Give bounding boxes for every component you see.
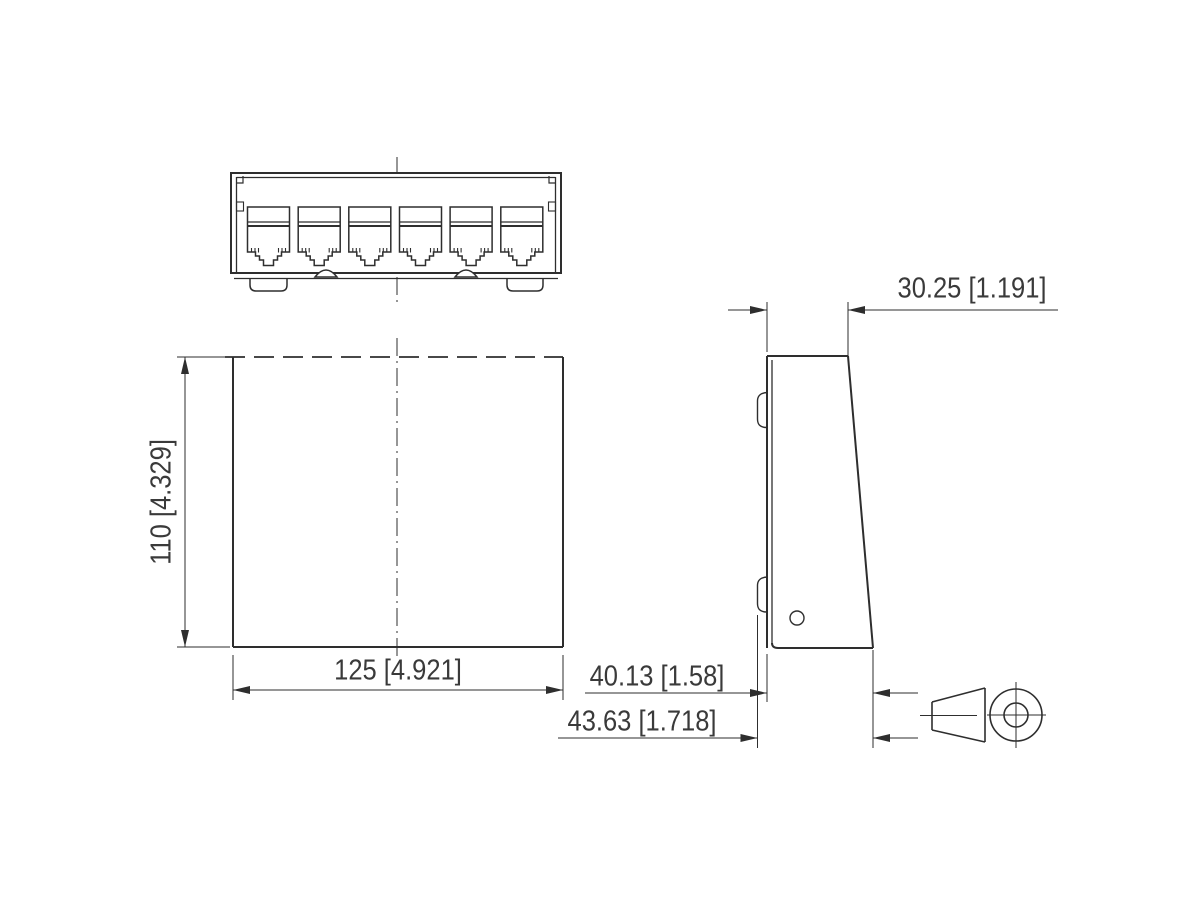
dim-side-top-depth xyxy=(728,302,1058,358)
front-view xyxy=(177,338,563,700)
arrow-left-tip xyxy=(848,306,865,314)
arrow-left-tip xyxy=(873,734,890,742)
side-slant-edge xyxy=(848,356,873,648)
dim-side-bottom-ext xyxy=(758,615,874,748)
dim-front-width-label: 125 [4.921] xyxy=(334,657,462,686)
third-angle-projection-symbol-icon xyxy=(920,682,1046,748)
arrow-up xyxy=(181,357,189,374)
side-clip-lower xyxy=(758,577,768,612)
technical-drawing-canvas: 110 [4.329] 125 [4.921] 30.25 [1.191] 40… xyxy=(0,0,1200,900)
arrow-down xyxy=(181,630,189,647)
arrow-right-tip xyxy=(750,689,767,697)
arrow-right-tip xyxy=(741,734,758,742)
foot-right xyxy=(507,279,543,292)
arrow-left xyxy=(233,686,250,694)
arrow-left-tip xyxy=(873,689,890,697)
dim-side-top-depth-label: 30.25 [1.191] xyxy=(897,275,1046,304)
dim-front-height xyxy=(177,357,230,647)
top-view-housing-outline xyxy=(231,173,561,273)
screw-hole xyxy=(790,611,804,625)
arrow-right-tip xyxy=(750,306,767,314)
arrow-right xyxy=(546,686,563,694)
top-view xyxy=(231,157,561,305)
side-bottom-edge xyxy=(772,643,873,648)
dim-side-total-depth-label: 43.63 [1.718] xyxy=(567,708,716,737)
drawing-svg xyxy=(0,0,1200,900)
dim-side-body-depth-label: 40.13 [1.58] xyxy=(590,663,725,692)
dim-front-height-label: 110 [4.329] xyxy=(148,439,177,565)
side-clip-upper xyxy=(758,393,768,428)
foot-left xyxy=(250,279,287,292)
